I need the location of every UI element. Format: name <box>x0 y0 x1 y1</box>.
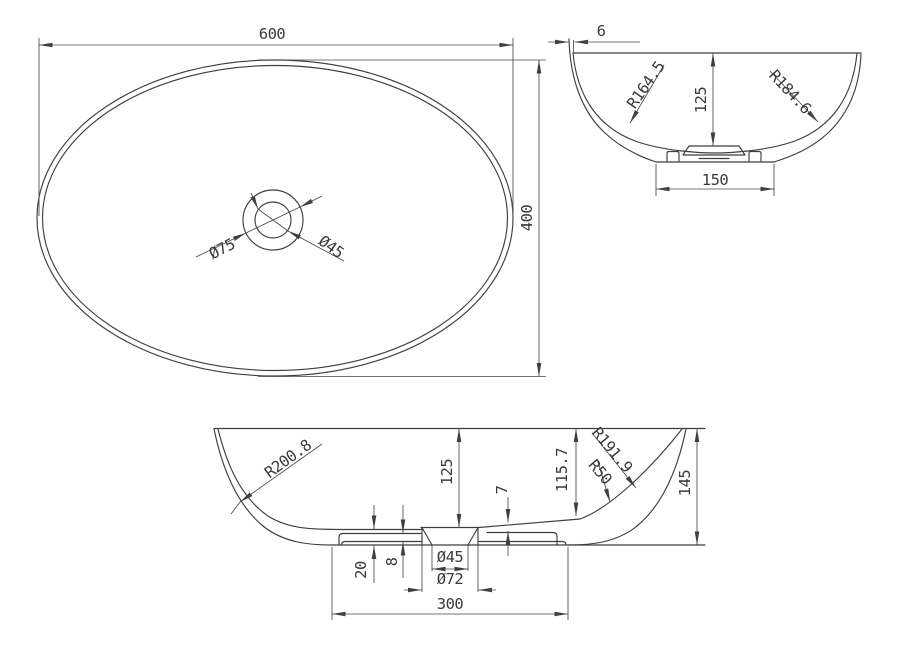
inner-bowl-curve <box>573 53 857 153</box>
dim-label-bore-dia: Ø72 <box>437 570 464 588</box>
dim-label-radius-outer: R184.6 <box>765 66 814 117</box>
dim-label-recess-depth: 8 <box>383 557 401 566</box>
dim-label-bowl-depth: 125 <box>692 87 710 114</box>
foot-pad-left <box>667 152 679 163</box>
dim-label-overall-height: 145 <box>676 470 694 497</box>
dim-label-inner-height: 115.7 <box>553 448 571 492</box>
inner-bowl-right <box>479 429 682 528</box>
technical-drawing-canvas: Ø75 Ø45 600 400 6 R164.5 R <box>0 0 900 655</box>
inner-bowl-left <box>218 429 421 530</box>
basin-inner-rim <box>43 66 508 371</box>
dim-label-step: 7 <box>493 485 511 494</box>
dim-label-radius-left: R200.8 <box>261 436 315 482</box>
leader-dia75-right <box>300 196 322 207</box>
dim-label-overall-width: 600 <box>259 25 286 43</box>
foot-pad-right <box>749 152 761 163</box>
end-section-view: 6 R164.5 R184.6 125 150 <box>548 22 861 196</box>
drain-funnel <box>422 528 478 546</box>
basin-outer-rim <box>37 60 513 376</box>
leader-dia45-left <box>251 193 258 209</box>
leader-radius-left-tail <box>231 502 240 514</box>
outer-wall-right <box>774 53 861 162</box>
dim-label-drain-inner-dia: Ø45 <box>315 232 347 262</box>
dim-label-base-width: 150 <box>702 171 729 189</box>
plan-view: Ø75 Ø45 600 400 <box>37 25 546 377</box>
dim-label-radius-inner: R164.5 <box>623 58 668 112</box>
dim-label-drain-dia: Ø45 <box>437 548 464 566</box>
base-recess-left <box>339 534 422 546</box>
outer-wall-left <box>214 429 332 545</box>
dim-label-base-length: 300 <box>437 595 464 613</box>
base-recess-right <box>479 533 566 546</box>
dim-label-wall-thickness: 6 <box>597 22 606 40</box>
drawing-sheet: Ø75 Ø45 600 400 6 R164.5 R <box>0 0 900 655</box>
dim-label-overall-depth: 400 <box>518 205 536 232</box>
dim-label-bowl-depth: 125 <box>438 459 456 486</box>
long-section-view: R200.8 R191.9 R50 125 7 115.7 145 20 8 Ø… <box>214 424 705 620</box>
leader-dia45-chord <box>258 209 288 231</box>
dim-label-base-thickness: 20 <box>352 561 370 579</box>
